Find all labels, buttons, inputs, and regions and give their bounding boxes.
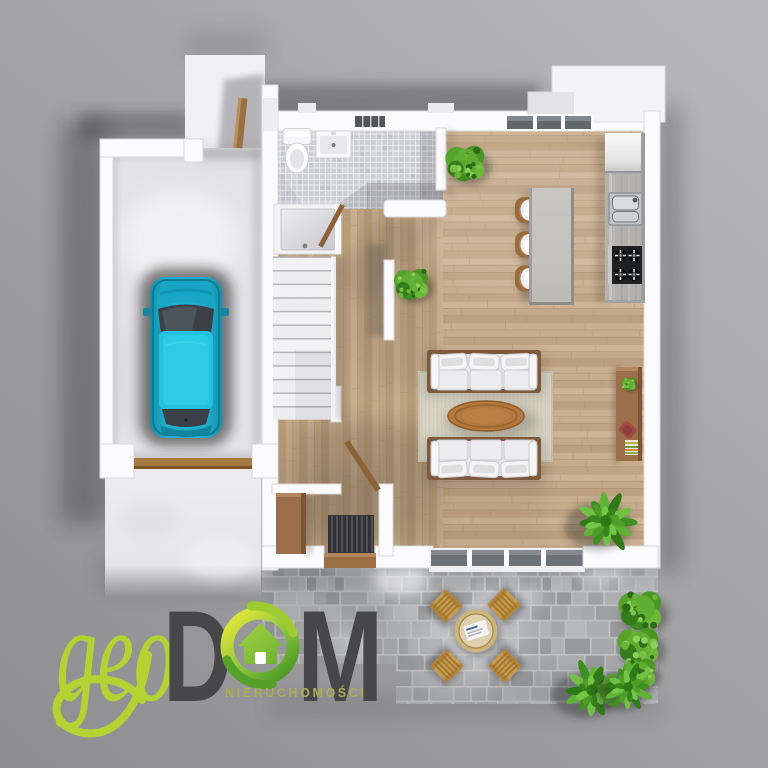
svg-text:geo: geo bbox=[56, 578, 175, 731]
svg-text:M: M bbox=[297, 583, 384, 729]
svg-text:NIERUCHOMOŚCI: NIERUCHOMOŚCI bbox=[225, 685, 366, 700]
